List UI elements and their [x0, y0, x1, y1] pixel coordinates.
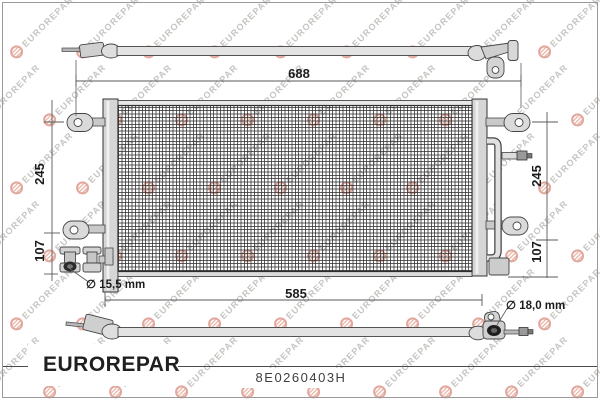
condenser-technical-drawing	[0, 0, 600, 400]
part-number: 8E0260403H	[240, 368, 362, 388]
right-side-pipe	[487, 141, 532, 275]
dim-label-left-height: 245	[33, 144, 47, 204]
core-top-band	[118, 101, 472, 106]
condenser-body	[103, 99, 487, 292]
dim-label-core-width: 585	[266, 286, 326, 301]
brand-name: EUROREPAR	[43, 353, 180, 377]
mounting-tab-lower-right	[486, 217, 528, 235]
mounting-hole	[515, 119, 523, 127]
mounting-hole	[74, 119, 82, 127]
dim-label-right-height: 245	[530, 146, 544, 206]
technical-drawing-page: EUROREPAREUROREPAREUROREPAREUROREPAREURO…	[0, 0, 600, 400]
top-pipe-bracket-hole	[492, 67, 499, 74]
mounting-hole	[513, 222, 521, 230]
core-outline	[118, 106, 472, 272]
right-tank	[472, 99, 487, 276]
dim-label-right-lower-height: 107	[530, 222, 544, 282]
inlet-port-fitting	[60, 247, 80, 272]
brand-logo: EUROREPAR	[28, 344, 178, 386]
bracket-hole	[488, 314, 494, 320]
dim-label-inlet-diameter: ∅ 15,5 mm	[86, 277, 145, 291]
dim-label-left-lower-height: 107	[33, 221, 47, 281]
mounting-tab-upper-left	[67, 114, 105, 132]
mounting-tab-lower-left	[63, 221, 105, 239]
mounting-tab-upper-right	[486, 114, 530, 132]
threaded-fitting	[519, 328, 528, 336]
bottom-pipe	[66, 311, 533, 340]
mounting-hole	[70, 226, 78, 234]
threaded-fitting	[517, 151, 527, 160]
dim-label-outlet-diameter: ∅ 18,0 mm	[506, 298, 565, 312]
service-port-stub	[502, 153, 518, 160]
dim-label-overall-width: 688	[269, 66, 329, 81]
